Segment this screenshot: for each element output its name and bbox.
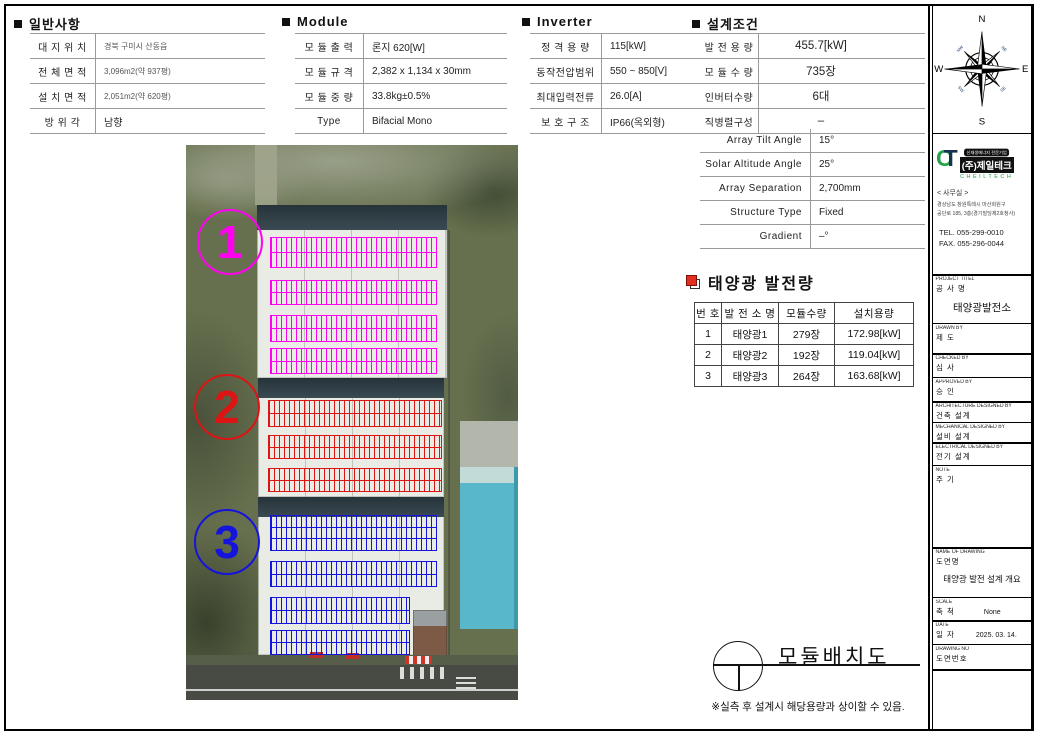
table-row: Array Tilt Angle 15°	[700, 129, 925, 153]
field-label-kr: 제 도	[933, 332, 1031, 343]
row-label: Gradient	[700, 225, 811, 248]
general-info-table: 대 지 위 치 경북 구미시 산동읍 전 체 면 적 3,096m2(약 937…	[30, 33, 265, 134]
solar-array-row	[268, 435, 442, 459]
area-2-label: 2	[214, 384, 240, 430]
row-label: 모 듈 출 력	[295, 34, 364, 58]
table-cell: 3	[695, 366, 721, 386]
row-value: –°	[811, 225, 925, 248]
table-row: 모 듈 수 량 735장	[700, 58, 925, 83]
company-tel: TEL. 055-299-0010	[939, 228, 1027, 237]
row-value: Bifacial Mono	[364, 109, 507, 133]
field-label-kr: 전기 설계	[933, 451, 1031, 462]
field-label-en: DRAWING NO	[933, 645, 1016, 652]
company-address-1: 경상남도 창원특례시 마산회원구	[937, 200, 1014, 208]
row-label: 발 전 용 량	[700, 34, 759, 58]
row-label: Array Separation	[700, 177, 811, 200]
safety-barrier	[405, 656, 432, 664]
generation-table: 번 호 발 전 소 명 모듈수량 설치용량 1 태양광1 279장 172.98…	[694, 302, 914, 387]
table-cell: 2	[695, 345, 721, 365]
titleblock-checked-by: CHECKED BY 심 사	[932, 353, 1032, 378]
field-label-en: SCALE	[933, 598, 1016, 605]
row-label: 설 치 면 적	[30, 84, 96, 108]
square-bullet-icon	[282, 18, 290, 26]
row-value: 6대	[767, 88, 875, 104]
company-name: (주)제일테크	[960, 157, 1014, 173]
row-value: 15°	[811, 129, 925, 152]
table-cell: 119.04[kW]	[835, 345, 913, 365]
drawing-name-value: 태양광 발전 설계 개요	[933, 573, 1031, 585]
solar-array-row	[270, 315, 437, 342]
drawing-title-symbol	[713, 641, 763, 691]
company-logo: C T 신재생에너지 전문기업 (주)제일테크 CHEILTECH	[936, 148, 1029, 180]
row-label: 인버터수량	[700, 84, 759, 108]
row-label: 최대입력전류	[530, 84, 602, 108]
table-cell: 태양광1	[722, 324, 778, 344]
column-header: 설치용량	[835, 303, 913, 323]
layers-icon	[686, 275, 701, 290]
solar-array-row	[270, 280, 437, 305]
compass-s-label: S	[979, 117, 985, 128]
section-header-inverter: Inverter	[522, 14, 593, 29]
drawing-title: 모듈배치도	[778, 641, 890, 671]
table-row: 모 듈 규 격 2,382 x 1,134 x 30mm	[295, 58, 507, 83]
scale-value: None	[984, 609, 1001, 616]
compass-box: N E S W NE NW SE SW	[932, 4, 1032, 134]
row-label: 정 격 용 량	[530, 34, 602, 58]
solar-array-row	[268, 468, 442, 492]
field-label-kr: 주 기	[933, 474, 1031, 485]
table-row: Array Separation 2,700mm	[700, 177, 925, 201]
crosswalk	[400, 667, 447, 679]
table-row: Solar Altitude Angle 25°	[700, 153, 925, 177]
section-header-module: Module	[282, 14, 349, 29]
company-fax: FAX. 055-296-0044	[939, 239, 1027, 248]
table-row: 전 체 면 적 3,096m2(약 937평)	[30, 58, 265, 83]
area-2-marker: 2	[194, 374, 260, 440]
row-value: 론지 620[W]	[364, 34, 507, 58]
logo-letter-t: T	[944, 148, 958, 169]
table-cell: 279장	[779, 324, 834, 344]
field-label-en: ARCHITECTURE DESIGNED BY	[933, 402, 1016, 409]
row-label: 모 듈 중 량	[295, 84, 364, 108]
row-value: 남향	[96, 109, 265, 133]
solar-array-row	[270, 597, 410, 624]
titleblock-drawn-by: DRAWN BY 제 도	[932, 323, 1032, 355]
cyan-building	[460, 467, 518, 629]
compass-se-label: SE	[999, 85, 1007, 93]
row-value: IP66(옥외형)	[602, 109, 706, 133]
table-row: 동작전압범위 550 ~ 850[V]	[530, 58, 706, 83]
row-value: –	[767, 115, 875, 127]
road	[186, 665, 518, 700]
section-title: Module	[297, 14, 349, 29]
solar-array-row	[270, 237, 437, 268]
compass-ne-label: NE	[1000, 45, 1008, 53]
table-row: 모 듈 중 량 33.8kg±0.5%	[295, 83, 507, 108]
field-label-kr: 건축 설계	[933, 410, 1031, 421]
titleblock-note: NOTE 주 기	[932, 465, 1032, 549]
field-label-kr: 일 자	[933, 629, 958, 640]
field-label-en: APPROVED BY	[933, 378, 1016, 385]
table-cell: 163.68[kW]	[835, 366, 913, 386]
field-label-kr: 도면번호	[933, 653, 1031, 664]
row-label: 대 지 위 치	[30, 34, 96, 58]
solar-array-row	[270, 348, 437, 374]
dirt-path	[255, 145, 277, 205]
section-title: Inverter	[537, 14, 593, 29]
solar-array-row	[268, 400, 442, 427]
titleblock-empty	[932, 669, 1032, 731]
footnote: ※실측 후 설계시 해당용량과 상이할 수 있음.	[688, 699, 928, 714]
field-label-en: DRAWN BY	[933, 324, 1016, 331]
row-label: Solar Altitude Angle	[700, 153, 811, 176]
row-label: Array Tilt Angle	[700, 129, 811, 152]
field-label-en: CHECKED BY	[933, 354, 1016, 361]
drawing-sheet: 일반사항 Module Inverter 설계조건 대 지 위 치 경북 구미시…	[0, 0, 1038, 735]
company-box: C T 신재생에너지 전문기업 (주)제일테크 CHEILTECH < 사무실 …	[932, 133, 1032, 276]
area-1-label: 1	[217, 219, 243, 265]
table-cell: 264장	[779, 366, 834, 386]
table-row: Type Bifacial Mono	[295, 108, 507, 134]
area-1-marker: 1	[197, 209, 263, 275]
design-conditions-table-2: Array Tilt Angle 15° Solar Altitude Angl…	[700, 129, 925, 249]
titleblock-architecture: ARCHITECTURE DESIGNED BY 건축 설계	[932, 401, 1032, 423]
table-row: 인버터수량 6대	[700, 83, 925, 108]
field-label-kr: 심 사	[933, 362, 1031, 373]
solar-array-row	[270, 561, 437, 587]
section-title: 설계조건	[707, 14, 759, 33]
square-bullet-icon	[14, 20, 22, 28]
field-label-kr: 축 척	[933, 606, 958, 617]
title-block-sidebar: N E S W NE NW SE SW C T 신재생에너지 전문기업	[928, 4, 1034, 731]
section-header-generation: 태양광 발전량	[686, 270, 815, 294]
paved-yard	[460, 421, 518, 467]
row-value: 3,096m2(약 937평)	[96, 59, 265, 83]
column-header: 번 호	[695, 303, 721, 323]
row-label: 방 위 각	[30, 109, 96, 133]
field-label-kr: 공 사 명	[933, 283, 1031, 294]
section-header-design: 설계조건	[692, 14, 759, 33]
row-value: Fixed	[811, 201, 925, 224]
module-spec-table: 모 듈 출 력 론지 620[W] 모 듈 규 격 2,382 x 1,134 …	[295, 33, 507, 134]
titleblock-drawing-no: DRAWING NO 도면번호	[932, 644, 1032, 671]
company-address-2: 공단로 185, 3층(경기빌딩제2호청사)	[937, 209, 1014, 217]
row-value: 26.0[A]	[602, 84, 706, 108]
compass-n-label: N	[979, 14, 986, 25]
titleblock-project: PROJECT TITEL 공 사 명 태양광발전소	[932, 274, 1032, 324]
row-label: 전 체 면 적	[30, 59, 96, 83]
table-row: 방 위 각 남향	[30, 108, 265, 134]
date-value: 2025. 03. 14.	[976, 632, 1017, 639]
office-label: < 사무실 >	[937, 188, 1027, 198]
section-header-general: 일반사항	[14, 14, 81, 33]
titleblock-electrical: ELECTRICAL DESIGNED BY 전기 설계	[932, 442, 1032, 466]
solar-array-row	[270, 630, 410, 655]
section-title: 일반사항	[29, 14, 81, 33]
field-label-kr: 도면명	[933, 556, 1031, 567]
section-title: 태양광 발전량	[708, 270, 815, 294]
column-header: 발 전 소 명	[722, 303, 778, 323]
table-row: Structure Type Fixed	[700, 201, 925, 225]
titleblock-mechanical: MECHANICAL DESIGNED BY 설비 설계	[932, 422, 1032, 444]
row-label: 모 듈 규 격	[295, 59, 364, 83]
compass-e-label: E	[1022, 64, 1028, 75]
table-cell: 태양광2	[722, 345, 778, 365]
field-label-en: PROJECT TITEL	[933, 275, 1016, 282]
table-row: 대 지 위 치 경북 구미시 산동읍	[30, 33, 265, 58]
area-3-label: 3	[214, 519, 240, 565]
table-row: 설 치 면 적 2,051m2(약 620평)	[30, 83, 265, 108]
row-value: 경북 구미시 산동읍	[96, 34, 265, 58]
row-value: 33.8kg±0.5%	[364, 84, 507, 108]
row-value: 455.7[kW]	[767, 40, 875, 52]
row-label: 동작전압범위	[530, 59, 602, 83]
column-header: 모듈수량	[779, 303, 834, 323]
field-label-en: NOTE	[933, 466, 1016, 473]
inverter-spec-table: 정 격 용 량 115[kW] 동작전압범위 550 ~ 850[V] 최대입력…	[530, 33, 706, 134]
compass-nw-label: NW	[956, 44, 965, 53]
row-value: 2,051m2(약 620평)	[96, 84, 265, 108]
table-row: 모 듈 출 력 론지 620[W]	[295, 33, 507, 58]
table-cell: 태양광3	[722, 366, 778, 386]
row-value: 25°	[811, 153, 925, 176]
row-value: 550 ~ 850[V]	[602, 59, 706, 83]
field-label-en: MECHANICAL DESIGNED BY	[933, 423, 1016, 430]
table-row: 정 격 용 량 115[kW]	[530, 33, 706, 58]
table-row: Gradient –°	[700, 225, 925, 249]
table-row: 발 전 용 량 455.7[kW]	[700, 33, 925, 58]
area-3-marker: 3	[194, 509, 260, 575]
crosswalk-side	[456, 675, 476, 689]
row-value: 2,382 x 1,134 x 30mm	[364, 59, 507, 83]
road-lane-line	[186, 689, 518, 691]
design-conditions-table: 발 전 용 량 455.7[kW] 모 듈 수 량 735장 인버터수량 6대 …	[700, 33, 925, 134]
field-label-en: DATE	[933, 621, 1016, 628]
company-name-en: CHEILTECH	[960, 174, 1013, 180]
aerial-site-photo: 1 2 3	[186, 145, 518, 700]
field-label-en: NAME OF DRAWING	[933, 548, 1016, 555]
table-row: 최대입력전류 26.0[A]	[530, 83, 706, 108]
field-label-en: ELECTRICAL DESIGNED BY	[933, 443, 1016, 450]
small-structure	[413, 610, 447, 658]
project-title-value: 태양광발전소	[933, 300, 1031, 315]
titleblock-scale: SCALE 축 척 None	[932, 597, 1032, 622]
company-badge: 신재생에너지 전문기업	[964, 148, 1009, 156]
table-row: 보 호 구 조 IP66(옥외형)	[530, 108, 706, 134]
titleblock-date: DATE 일 자 2025. 03. 14.	[932, 620, 1032, 645]
field-label-kr: 설비 설계	[933, 431, 1031, 442]
fence-line	[448, 230, 450, 655]
square-bullet-icon	[522, 18, 530, 26]
row-label: Type	[295, 109, 364, 133]
row-label: 모 듈 수 량	[700, 59, 759, 83]
row-value: 115[kW]	[602, 34, 706, 58]
field-label-kr: 승 인	[933, 386, 1031, 397]
compass-w-label: W	[934, 64, 943, 75]
titleblock-drawing-name: NAME OF DRAWING 도면명 태양광 발전 설계 개요	[932, 547, 1032, 598]
solar-array-row	[270, 515, 437, 551]
table-cell: 172.98[kW]	[835, 324, 913, 344]
table-cell: 192장	[779, 345, 834, 365]
titleblock-approved-by: APPROVED BY 승 인	[932, 377, 1032, 403]
row-value: 735장	[767, 63, 875, 79]
row-label: Structure Type	[700, 201, 811, 224]
square-bullet-icon	[692, 20, 700, 28]
compass-rose-icon: N E S W NE NW SE SW	[934, 10, 1030, 128]
table-cell: 1	[695, 324, 721, 344]
row-label: 보 호 구 조	[530, 109, 602, 133]
row-value: 2,700mm	[811, 177, 925, 200]
